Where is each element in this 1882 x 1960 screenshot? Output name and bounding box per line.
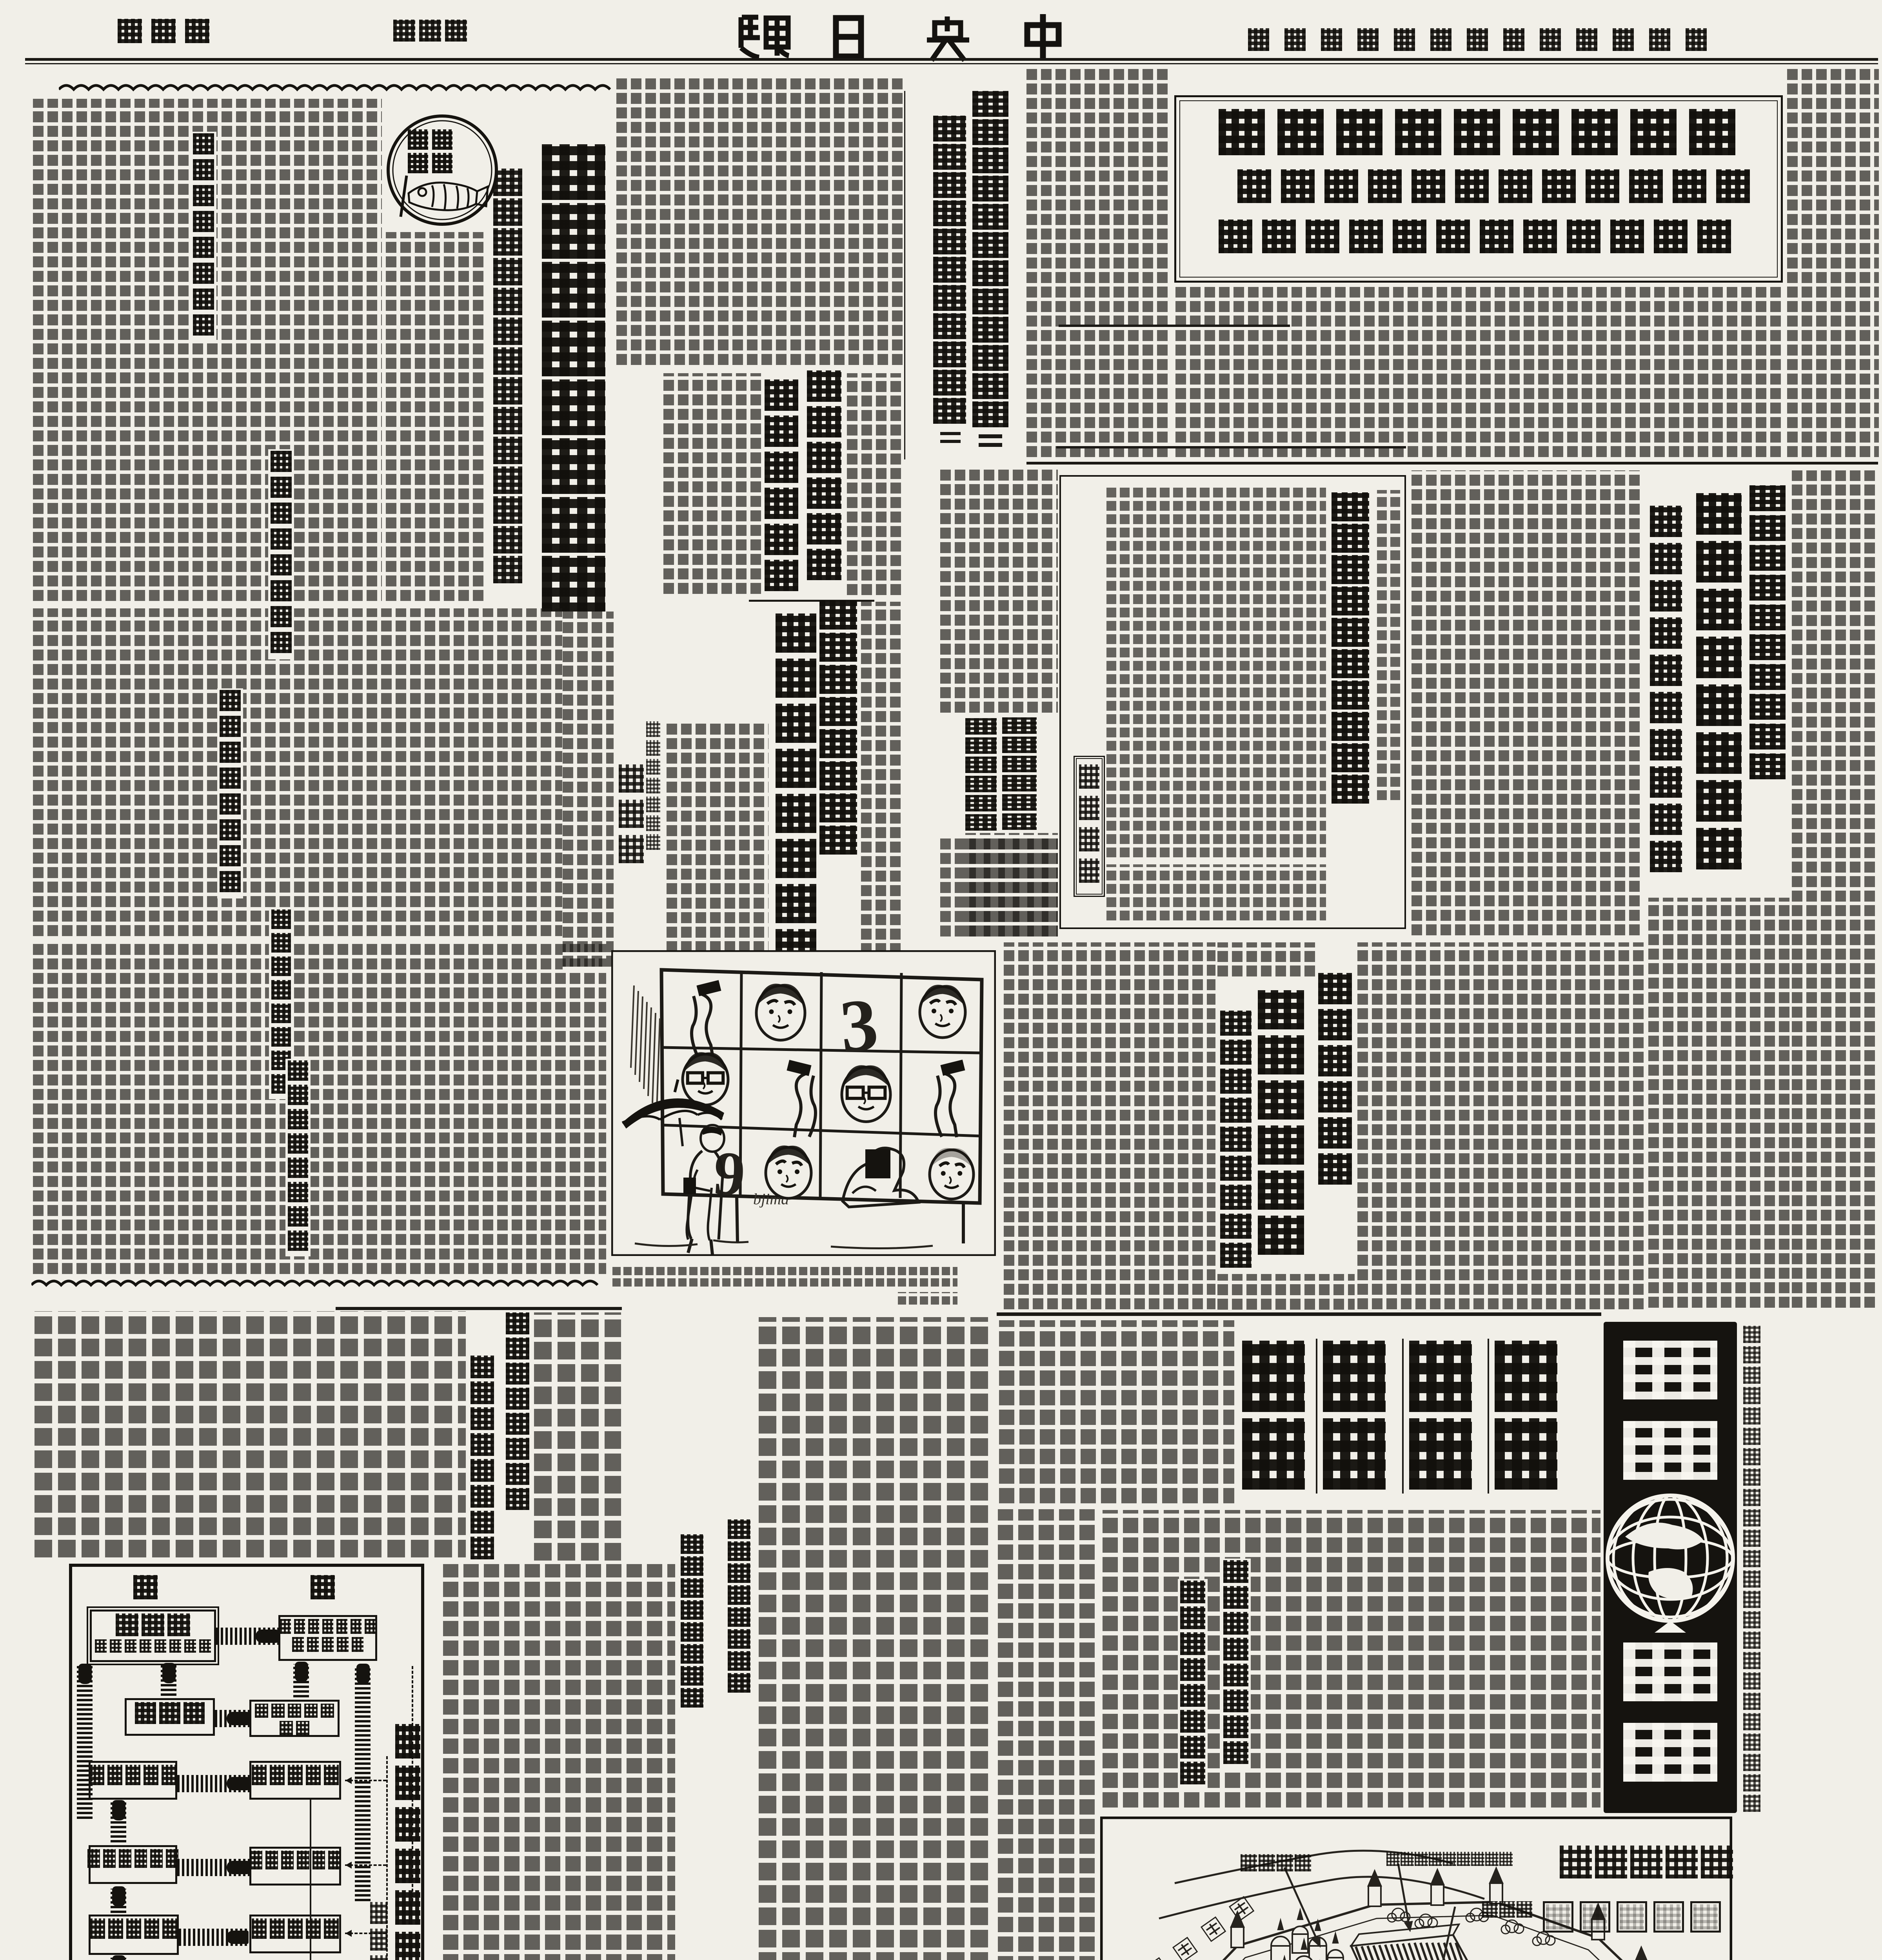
- svg-text:3: 3: [837, 983, 881, 1068]
